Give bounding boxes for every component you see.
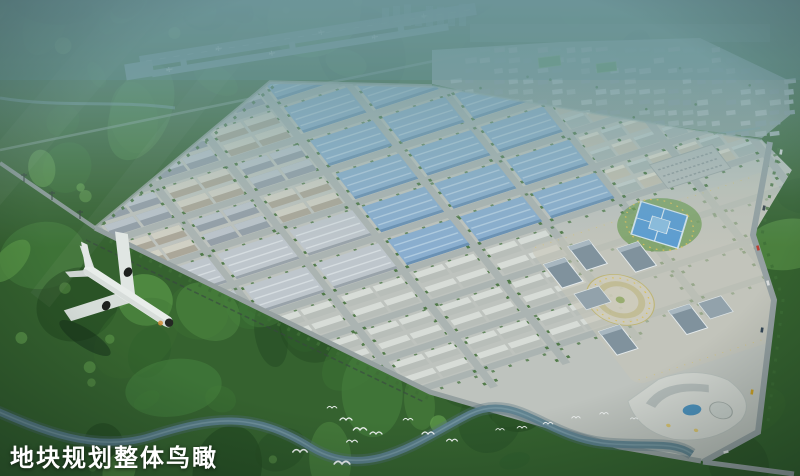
- caption: 地块规划整体鸟瞰: [10, 438, 218, 473]
- aerial-rendering: 地块规划整体鸟瞰: [0, 0, 800, 476]
- masterplan-scene: [0, 0, 800, 476]
- vignette: [0, 0, 800, 476]
